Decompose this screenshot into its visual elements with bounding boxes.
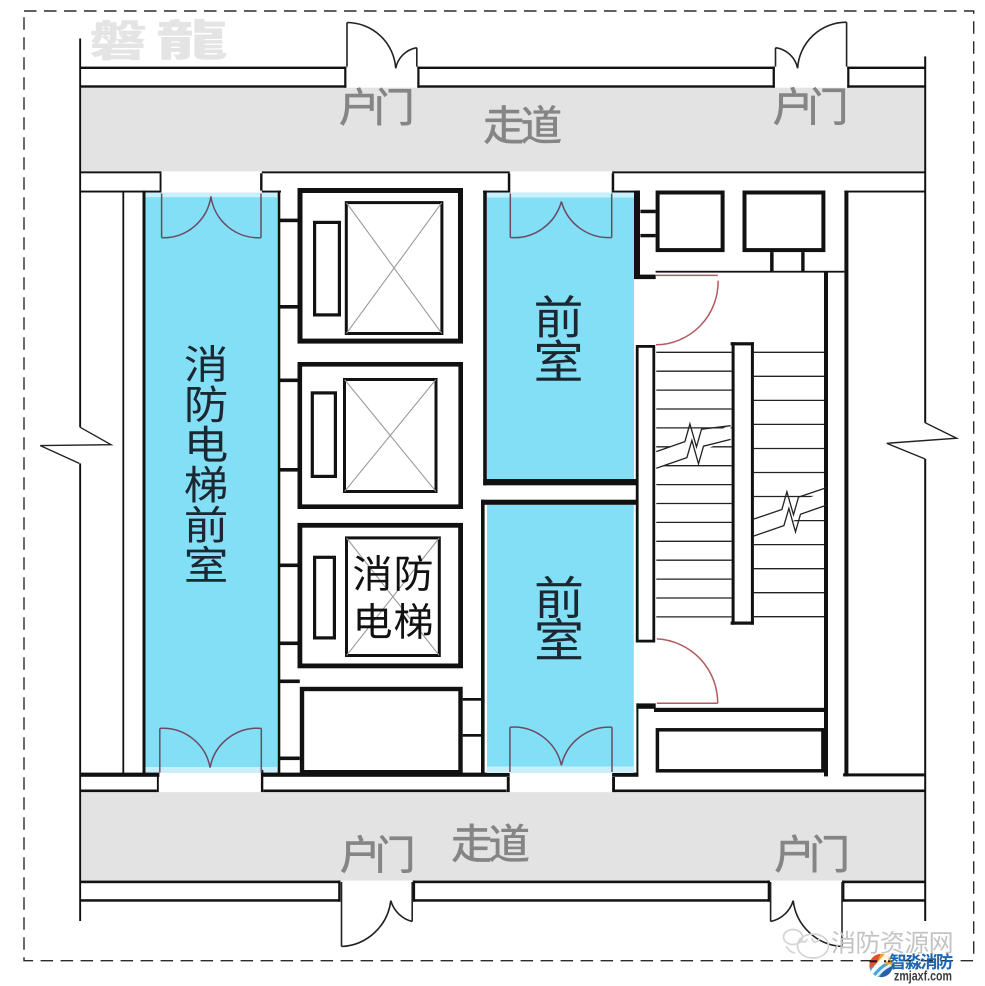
svg-text:zmjaxf.com: zmjaxf.com	[894, 969, 952, 984]
